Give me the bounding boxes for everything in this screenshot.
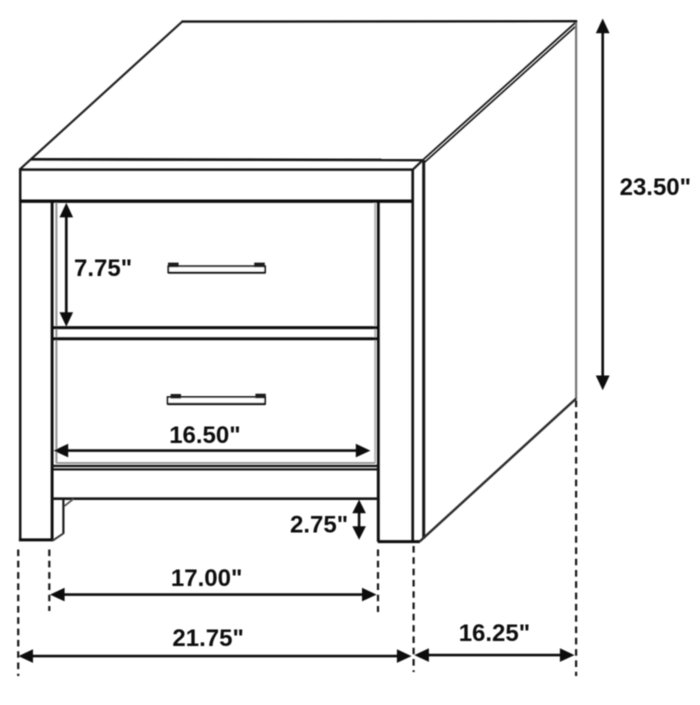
svg-text:2.75": 2.75" [290,512,348,539]
svg-text:7.75": 7.75" [74,255,132,282]
svg-text:21.75": 21.75" [172,625,243,652]
svg-text:16.50": 16.50" [169,422,240,449]
svg-text:17.00": 17.00" [171,565,242,592]
svg-text:23.50": 23.50" [620,174,691,201]
svg-text:16.25": 16.25" [459,620,530,647]
